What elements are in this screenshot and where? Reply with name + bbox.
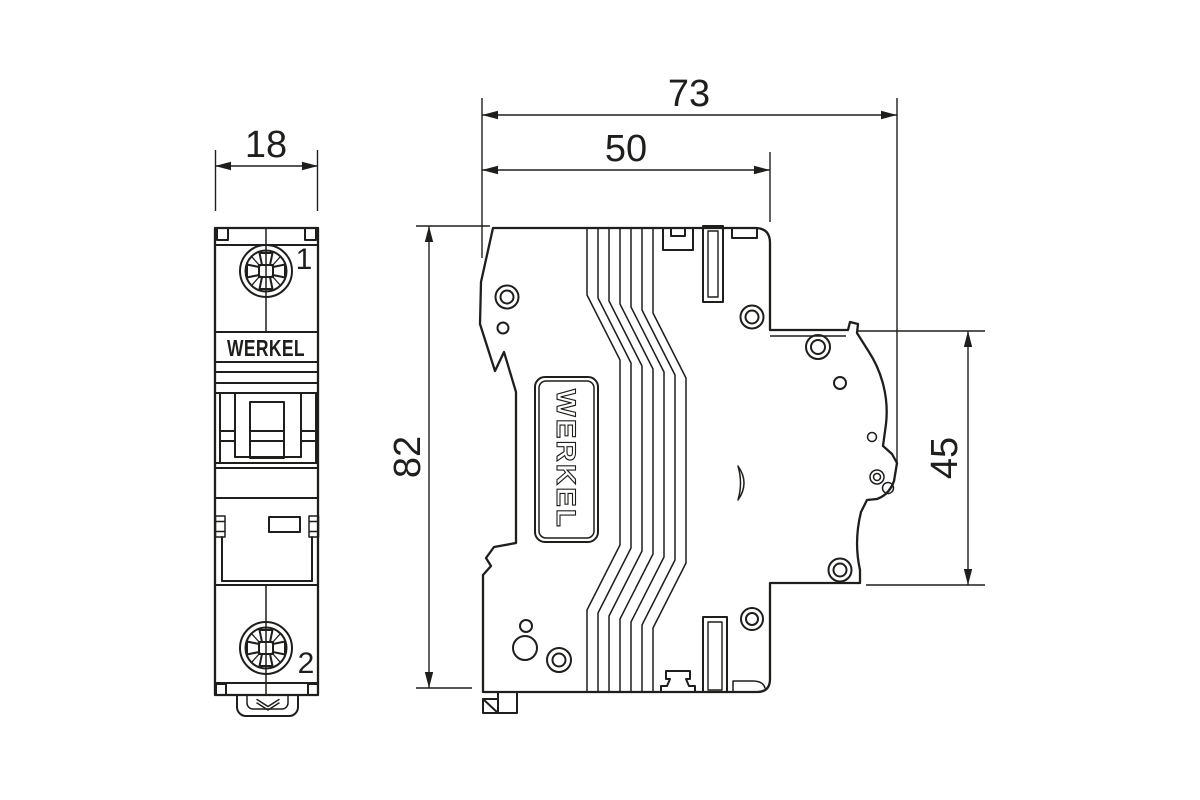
crescent-mark [738, 466, 744, 500]
toggle-switch [215, 393, 318, 498]
top-edge-details [663, 226, 757, 302]
terminal-1-label: 1 [296, 243, 313, 276]
dimension-overall-width: 73 [482, 73, 897, 463]
side-body-outline [480, 228, 897, 692]
front-view: 18 1 WERKEL [215, 124, 319, 716]
werkel-logo-side-text: WERKEL [551, 389, 581, 529]
dim-height-label: 82 [387, 436, 429, 478]
case-rib-lines [587, 228, 686, 692]
dimension-front-width: 18 [215, 124, 318, 211]
dimension-height: 82 [387, 226, 490, 688]
bottom-edge-details [661, 617, 765, 692]
dimension-upper-body-width: 50 [482, 128, 770, 222]
werkel-logo-front: WERKEL [227, 335, 305, 361]
upper-screw-bosses [496, 286, 847, 390]
dim-right-section-height-label: 45 [924, 437, 966, 479]
dim-upper-body-width-label: 50 [605, 128, 647, 170]
din-clip-front [237, 695, 298, 716]
din-tab-side [483, 692, 517, 713]
front-side-clips [216, 516, 319, 537]
dim-front-width-label: 18 [245, 124, 287, 166]
drawing-canvas: 18 1 WERKEL [0, 0, 1200, 800]
side-view: 73 50 82 45 [387, 73, 985, 713]
lever-latch-details [868, 433, 894, 494]
dim-overall-width-label: 73 [668, 73, 710, 115]
lower-screw-bosses [513, 559, 852, 673]
indicator-window [269, 517, 300, 532]
werkel-logo-side: WERKEL [535, 377, 598, 542]
terminal-2-label: 2 [298, 647, 315, 680]
technical-drawing: 18 1 WERKEL [0, 0, 1200, 800]
front-lower-frame [215, 537, 318, 585]
